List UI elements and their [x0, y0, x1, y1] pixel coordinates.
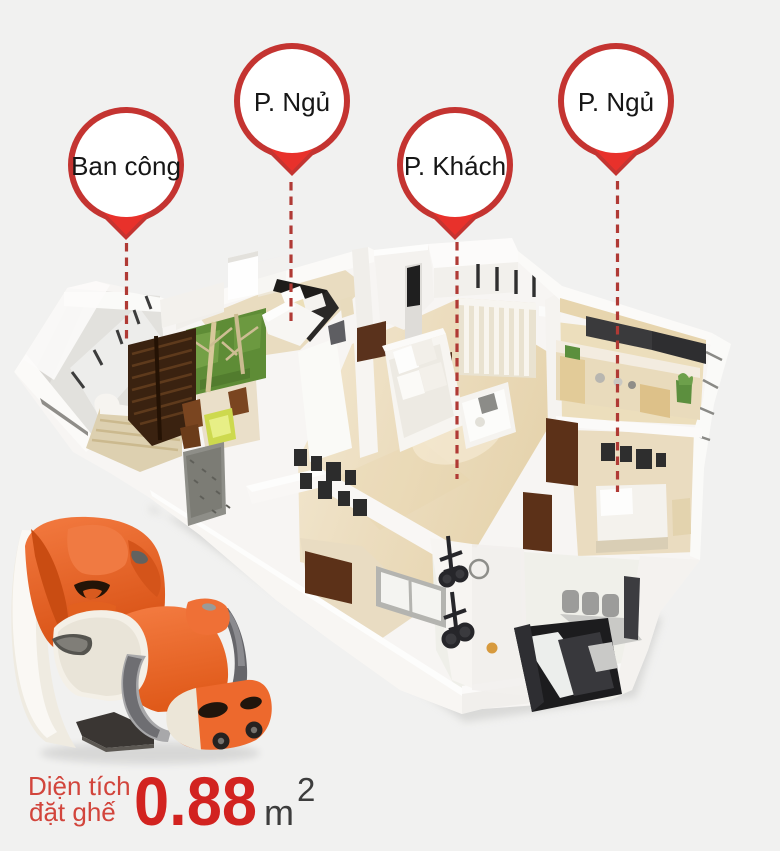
svg-text:P. Khách: P. Khách: [404, 151, 506, 181]
svg-text:P. Ngủ: P. Ngủ: [254, 87, 330, 117]
svg-text:m: m: [264, 792, 294, 833]
svg-text:Ban công: Ban công: [71, 151, 181, 181]
svg-text:0.88: 0.88: [134, 763, 257, 840]
svg-text:đặt ghế: đặt ghế: [29, 797, 116, 827]
svg-text:P. Ngủ: P. Ngủ: [578, 87, 654, 117]
svg-text:2: 2: [297, 771, 315, 808]
